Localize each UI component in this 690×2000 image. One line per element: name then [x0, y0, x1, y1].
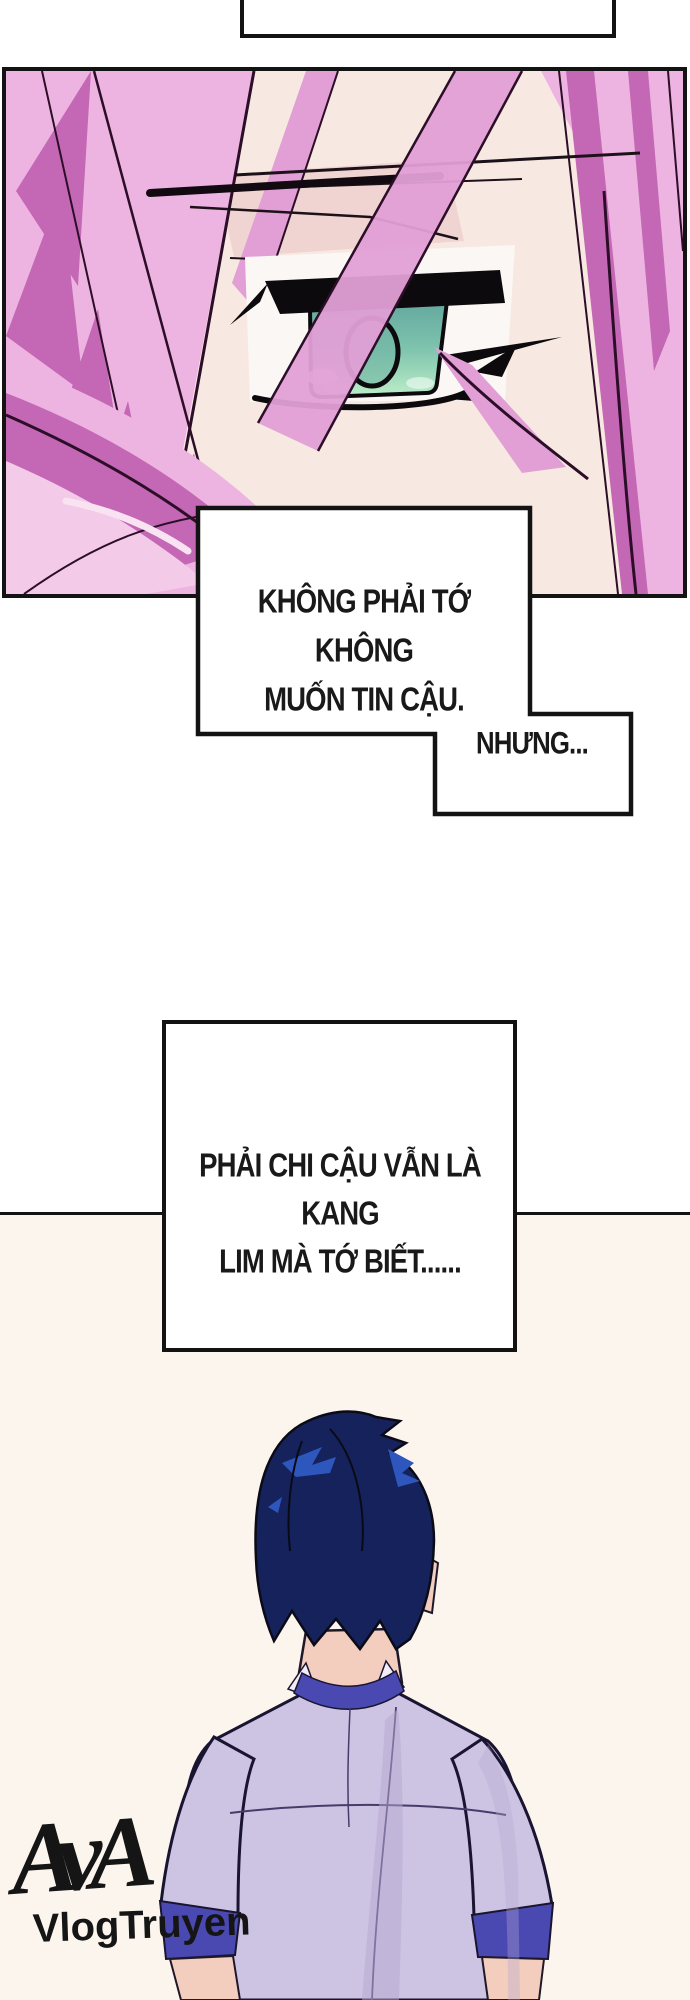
- speech-text-3-line2: LIM MÀ TỚ BIẾT......: [189, 1237, 492, 1285]
- speech-text-2: NHƯNG...: [450, 726, 613, 761]
- watermark-logo: AvA: [8, 1799, 283, 1904]
- speech-text-3: PHẢI CHI CẬU VẪN LÀ KANG LIM MÀ TỚ BIẾT.…: [189, 1141, 492, 1285]
- speech-text-3-line1: PHẢI CHI CẬU VẪN LÀ KANG: [189, 1141, 492, 1237]
- manga-page: KHÔNG PHẢI TỚ KHÔNG MUỐN TIN CẬU. NHƯNG.…: [0, 0, 690, 2000]
- watermark-site-name: VlogTruyen: [32, 1898, 285, 1952]
- boy-hair: [255, 1412, 434, 1650]
- watermark: AvA VlogTruyen: [14, 1818, 284, 1952]
- speech-text-1-line1: KHÔNG PHẢI TỚ KHÔNG: [221, 577, 507, 675]
- boy-forearm-left: [170, 1956, 240, 2000]
- speech-text-1: KHÔNG PHẢI TỚ KHÔNG MUỐN TIN CẬU.: [221, 577, 507, 724]
- speech-bubble-top-partial: [240, 0, 616, 38]
- speech-text-1-line2: MUỐN TIN CẬU.: [221, 675, 507, 724]
